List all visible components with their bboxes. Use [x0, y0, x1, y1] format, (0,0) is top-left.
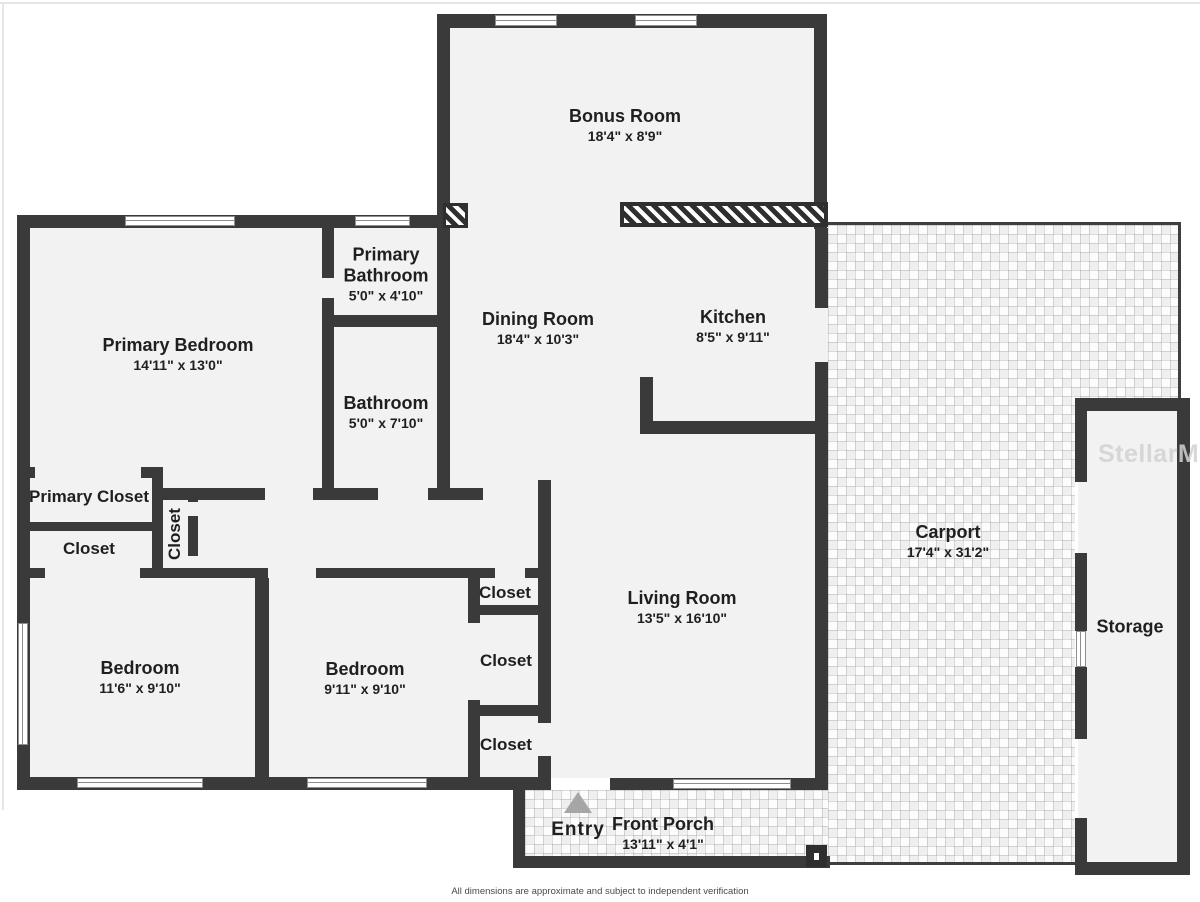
room-name: Bedroom — [99, 658, 180, 679]
wall — [538, 480, 551, 723]
wall — [152, 467, 163, 578]
window — [495, 15, 557, 26]
carport-edge-right — [1178, 222, 1181, 401]
wall — [1075, 667, 1087, 739]
wall — [815, 228, 828, 308]
hatched-wall — [620, 202, 828, 227]
closet-label-bottom: Closet — [480, 735, 532, 755]
wall — [316, 568, 468, 578]
room-dims: 9'11" x 9'10" — [324, 680, 405, 699]
room-name: Front Porch — [612, 814, 714, 835]
wall — [330, 315, 442, 327]
closet-label-vertical: Closet — [165, 508, 185, 560]
carport-edge-top — [828, 222, 1180, 225]
room-label-kitchen: Kitchen 8'5" x 9'11" — [696, 307, 770, 347]
closet-label-middle: Closet — [480, 651, 532, 671]
room-dims: 13'11" x 4'1" — [612, 835, 714, 854]
room-name: Bedroom — [324, 659, 405, 680]
frame-edge-left — [2, 2, 4, 810]
wall — [1075, 398, 1190, 411]
closet-label-hall: Closet — [63, 539, 115, 559]
window — [18, 623, 28, 745]
wall — [468, 605, 551, 615]
room-name: Dining Room — [482, 309, 594, 330]
wall — [468, 705, 551, 716]
wall — [428, 488, 483, 500]
room-label-bedroom-middle: Bedroom 9'11" x 9'10" — [324, 659, 405, 699]
room-dims: 13'5" x 16'10" — [628, 609, 737, 628]
room-name: Primary Bathroom — [331, 244, 441, 286]
room-name: Carport — [907, 522, 989, 543]
wall — [513, 856, 830, 868]
room-name: Living Room — [628, 588, 737, 609]
room-label-primary-bathroom: Primary Bathroom 5'0" x 4'10" — [331, 244, 441, 305]
wall — [188, 516, 198, 556]
wall — [814, 14, 827, 229]
window — [125, 216, 235, 226]
wall — [1075, 818, 1087, 862]
room-name: Storage — [1096, 616, 1163, 637]
room-name: Bonus Room — [569, 106, 681, 127]
entry-arrow-icon — [564, 792, 592, 813]
wall — [1075, 398, 1087, 482]
room-label-bonus-room: Bonus Room 18'4" x 8'9" — [569, 106, 681, 146]
wall — [437, 14, 450, 228]
window — [673, 779, 791, 789]
closet-label-top: Closet — [479, 583, 531, 603]
wall — [255, 578, 269, 778]
carport-edge-bottom — [790, 862, 1080, 865]
room-dims: 8'5" x 9'11" — [696, 328, 770, 347]
wall — [538, 756, 551, 790]
frame-edge-top — [0, 2, 1200, 4]
window — [355, 216, 410, 226]
window — [307, 778, 427, 788]
disclaimer-text: All dimensions are approximate and subje… — [0, 886, 1200, 897]
window — [635, 15, 697, 26]
room-dims: 17'4" x 31'2" — [907, 543, 989, 562]
wall — [640, 421, 828, 434]
porch-marker — [806, 845, 827, 867]
room-label-front-porch: Front Porch 13'11" x 4'1" — [612, 814, 714, 854]
wall — [1177, 398, 1190, 875]
wall — [1075, 553, 1087, 631]
wall — [30, 568, 45, 578]
floor-plan: Bonus Room 18'4" x 8'9" Primary Bedroom … — [0, 0, 1200, 902]
room-label-dining-room: Dining Room 18'4" x 10'3" — [482, 309, 594, 349]
room-dims: 14'11" x 13'0" — [102, 356, 253, 375]
watermark: StellarMLS — [1098, 440, 1200, 469]
wall — [155, 488, 265, 500]
wall — [140, 568, 268, 578]
room-name: Bathroom — [344, 393, 429, 414]
room-label-bathroom: Bathroom 5'0" x 7'10" — [344, 393, 429, 433]
wall — [17, 467, 35, 478]
wall — [1075, 862, 1190, 875]
window — [1076, 631, 1086, 667]
room-name: Primary Bedroom — [102, 335, 253, 356]
wall — [525, 568, 538, 578]
room-dims: 5'0" x 4'10" — [331, 287, 441, 306]
wall — [17, 522, 163, 531]
closet-label-primary: Primary Closet — [29, 487, 149, 507]
room-name: Kitchen — [696, 307, 770, 328]
room-dims: 18'4" x 10'3" — [482, 330, 594, 349]
room-label-primary-bedroom: Primary Bedroom 14'11" x 13'0" — [102, 335, 253, 375]
room-label-carport: Carport 17'4" x 31'2" — [907, 522, 989, 562]
room-label-living-room: Living Room 13'5" x 16'10" — [628, 588, 737, 628]
room-dims: 18'4" x 8'9" — [569, 127, 681, 146]
wall — [313, 488, 378, 500]
room-label-bedroom-left: Bedroom 11'6" x 9'10" — [99, 658, 180, 698]
room-dims: 11'6" x 9'10" — [99, 679, 180, 698]
entry-label: Entry — [551, 819, 605, 841]
room-label-storage: Storage — [1096, 616, 1163, 637]
room-dims: 5'0" x 7'10" — [344, 414, 429, 433]
hatched-wall-post — [443, 203, 468, 228]
window — [77, 778, 203, 788]
